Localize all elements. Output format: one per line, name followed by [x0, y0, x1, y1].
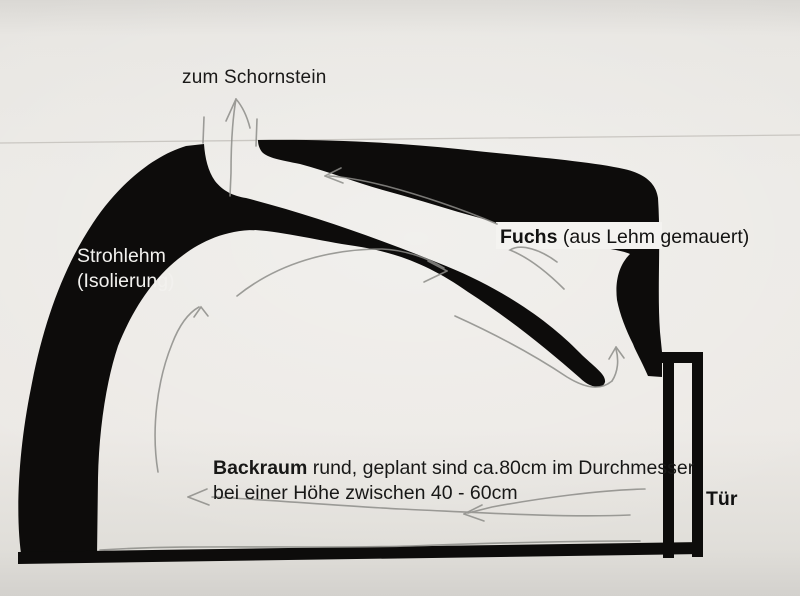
chimney-up-arrow-head-right — [236, 99, 250, 128]
baking-chamber-label: Backraum rund, geplant sind ca.80cm im D… — [213, 456, 694, 506]
flue-label: Fuchs (aus Lehm gemauert) — [500, 226, 749, 249]
insulation-label-line1: Strohlehm — [77, 244, 175, 269]
bottom-arrow1-head-lower — [464, 514, 484, 521]
insulation-label: Strohlehm (Isolierung) — [77, 244, 175, 294]
chimney-up-arrow-shaft — [230, 99, 236, 196]
flue-loop-arrow — [510, 247, 564, 289]
door-frame — [661, 352, 703, 558]
chimney-left-tick — [203, 117, 204, 143]
insulation-label-line2: (Isolierung) — [77, 269, 175, 294]
sketch-canvas — [0, 0, 800, 596]
bottom-arrow2-head-lower — [188, 497, 209, 505]
baking-chamber-term: Backraum — [213, 457, 307, 479]
oven-sketch-photo: zum Schornstein Strohlehm (Isolierung) F… — [0, 0, 800, 596]
flue-label-term: Fuchs — [500, 226, 557, 248]
bottom-arrow2-head-upper — [188, 489, 207, 497]
flue-label-desc: (aus Lehm gemauert) — [563, 226, 749, 248]
left-rise-arrow-shaft — [155, 307, 199, 472]
door-label: Tür — [706, 488, 737, 511]
baking-chamber-line2: bei einer Höhe zwischen 40 - 60cm — [213, 481, 694, 506]
baking-chamber-line1: Backraum rund, geplant sind ca.80cm im D… — [213, 456, 694, 481]
opening-up-arrow-head-left — [609, 347, 616, 359]
dome-arc-arrow-head-lower — [424, 271, 447, 282]
paper-seam-line — [0, 135, 800, 143]
chimney-right-tick — [256, 119, 257, 146]
oven-floor-line — [18, 542, 703, 564]
flue-outer-wall-shape — [258, 140, 662, 377]
baking-chamber-desc: rund, geplant sind ca.80cm im Durchmesse… — [313, 457, 695, 479]
door-frame-left — [663, 352, 674, 558]
chimney-label: zum Schornstein — [182, 67, 327, 89]
